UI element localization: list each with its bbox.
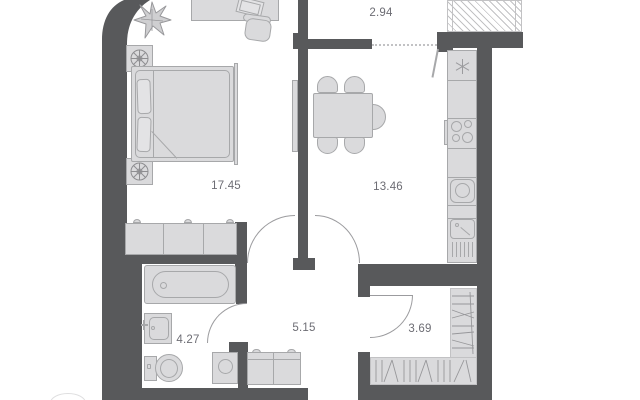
wall-segment xyxy=(102,260,142,397)
hanger-marks xyxy=(450,288,477,357)
toilet-button xyxy=(147,364,151,369)
washing-machine-drum xyxy=(218,359,233,374)
wall-segment xyxy=(477,48,492,400)
balcony-opening-dotted-line xyxy=(372,44,437,46)
wardrobe-dresser xyxy=(125,223,237,255)
room-area-label-bedroom: 17.45 xyxy=(211,180,241,192)
wall-segment xyxy=(358,385,492,400)
bed-footboard xyxy=(234,63,238,165)
bench-handle xyxy=(287,349,296,353)
cooktop-burner xyxy=(451,121,462,132)
wall-segment xyxy=(447,32,523,48)
sink-drain-dot xyxy=(455,223,459,227)
dresser-divider xyxy=(203,224,204,254)
wall-segment xyxy=(358,286,370,297)
fridge-asterisk-icon xyxy=(454,58,471,75)
sink-drainer-stripes xyxy=(452,242,475,257)
wall-segment xyxy=(102,54,127,260)
watermark-arc xyxy=(50,393,86,400)
counter-divider xyxy=(447,177,477,178)
office-chair-seat xyxy=(244,17,273,42)
room-area-label-wardrobe: 3.69 xyxy=(408,323,431,335)
dresser-handle xyxy=(226,219,234,223)
room-area-label-balcony: 2.94 xyxy=(369,7,392,19)
dining-chair xyxy=(317,137,338,154)
dresser-divider xyxy=(163,224,164,254)
pillow xyxy=(136,117,151,152)
kitchen-sink-bowl xyxy=(455,183,470,198)
tv xyxy=(292,80,298,152)
dining-chair xyxy=(344,137,365,154)
bathroom-door-arc xyxy=(207,303,247,343)
wall-segment xyxy=(102,388,308,400)
loggia-hatched-area xyxy=(447,0,522,32)
washbasin-drain xyxy=(151,326,155,330)
balcony-door-leaf xyxy=(431,49,438,78)
wall-segment xyxy=(293,258,315,270)
kitchen-door-arc xyxy=(315,215,360,263)
loggia-edge-line xyxy=(452,0,453,32)
hall-bench xyxy=(247,352,301,385)
cooktop-burner xyxy=(452,134,460,142)
bathtub-drain xyxy=(160,282,167,289)
bench-handle xyxy=(252,349,261,353)
plant-icon xyxy=(133,1,171,39)
dining-chair xyxy=(344,76,365,93)
cooktop-burner xyxy=(462,132,473,143)
wall-segment xyxy=(120,254,240,264)
bench-seat-line xyxy=(248,359,300,360)
wall-segment xyxy=(298,39,372,49)
hanger-marks xyxy=(370,357,477,385)
wall-segment xyxy=(358,352,370,388)
room-area-label-kitchen: 13.46 xyxy=(373,181,403,193)
counter-divider xyxy=(447,205,477,206)
room-area-label-hallway: 5.15 xyxy=(292,322,315,334)
bench-divider xyxy=(273,353,274,384)
bedroom-door-arc xyxy=(247,215,295,263)
pillow xyxy=(136,79,151,114)
bed-sheet-line xyxy=(153,70,154,158)
wall-segment xyxy=(236,262,247,304)
ceiling-fan-icon xyxy=(126,158,153,185)
floor-plan: 17.45 13.46 2.94 5.15 4.27 3.69 xyxy=(0,0,640,400)
dresser-handle xyxy=(184,219,192,223)
dining-table xyxy=(313,93,373,138)
toilet-bowl-inner xyxy=(160,359,178,378)
cooktop-handle xyxy=(444,120,448,145)
counter-divider xyxy=(447,80,477,81)
washbasin-tap xyxy=(143,320,145,330)
room-area-label-bathroom: 4.27 xyxy=(176,334,199,346)
wall-segment xyxy=(358,264,492,286)
counter-divider xyxy=(447,148,477,149)
cooktop-burner xyxy=(464,120,472,128)
counter-divider xyxy=(447,118,477,119)
wardrobe-door-arc xyxy=(370,295,413,338)
dining-chair xyxy=(317,76,338,93)
loggia-edge-line xyxy=(515,0,516,32)
dresser-handle xyxy=(133,219,141,223)
